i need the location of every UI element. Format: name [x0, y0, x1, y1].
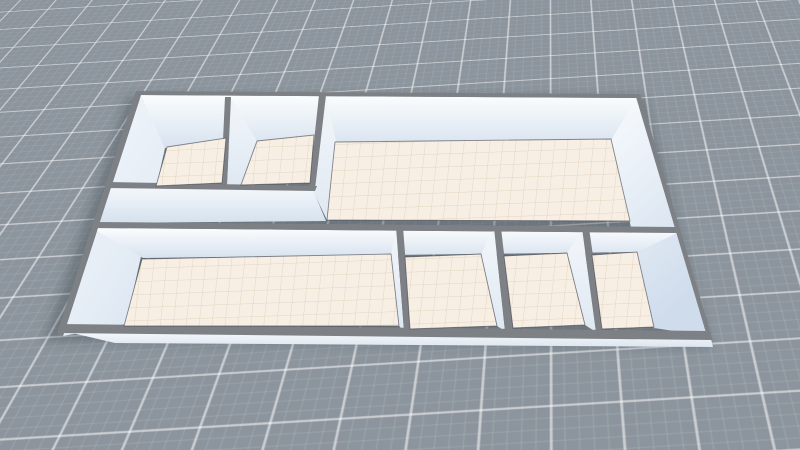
room-d-floor[interactable]	[124, 254, 399, 326]
room-c-floor[interactable]	[327, 139, 630, 221]
room-e-floor[interactable]	[405, 254, 497, 329]
floor-plan[interactable]	[0, 0, 800, 450]
hall-wall-south-face-and-hall[interactable]	[94, 188, 326, 223]
scene-root	[44, 91, 713, 347]
viewport[interactable]	[0, 0, 800, 450]
